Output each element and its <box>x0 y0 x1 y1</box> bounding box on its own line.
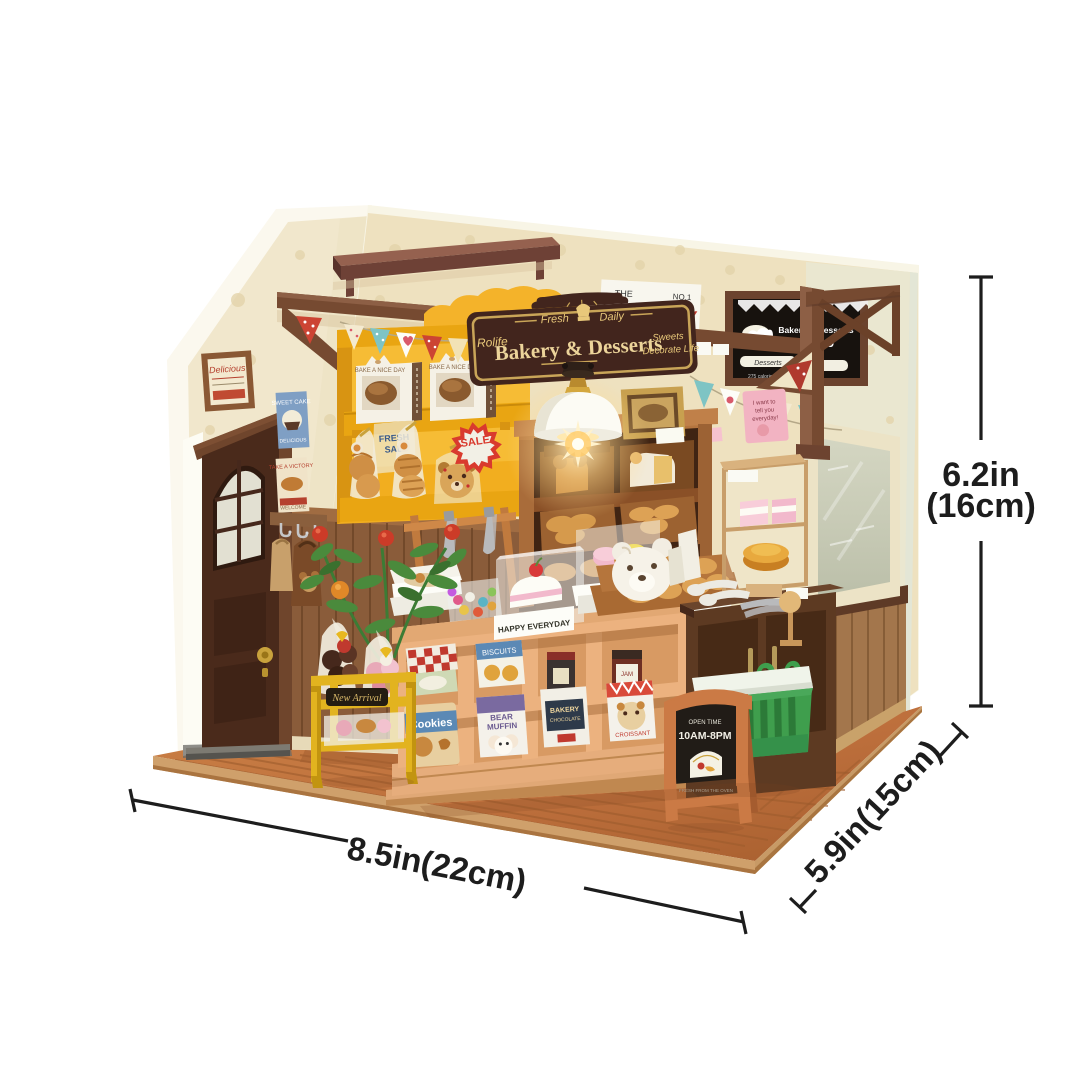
svg-text:(16cm): (16cm) <box>926 487 1036 525</box>
svg-text:Fresh: Fresh <box>540 313 569 327</box>
svg-text:10AM-8PM: 10AM-8PM <box>678 730 731 742</box>
svg-text:JAM: JAM <box>621 672 633 678</box>
svg-text:Desserts: Desserts <box>754 360 782 367</box>
svg-text:BAKE A NICE DAY: BAKE A NICE DAY <box>355 368 406 374</box>
svg-text:New Arrival: New Arrival <box>332 693 382 704</box>
svg-text:Sweets: Sweets <box>652 331 684 344</box>
svg-text:Daily: Daily <box>599 310 626 324</box>
svg-text:OPEN TIME: OPEN TIME <box>689 720 722 726</box>
